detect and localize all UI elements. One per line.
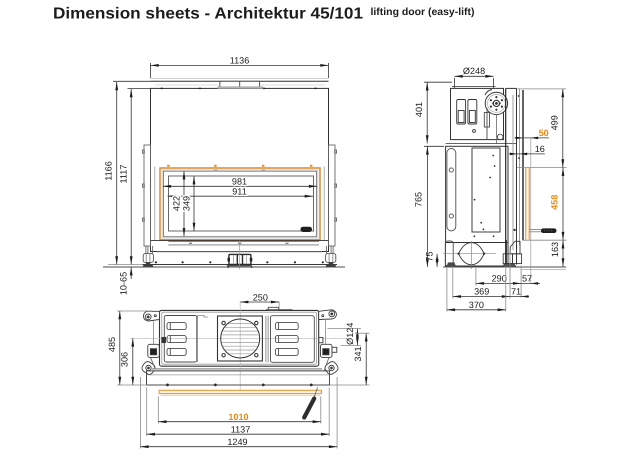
- svg-text:50: 50: [539, 128, 549, 138]
- svg-text:1136: 1136: [230, 56, 250, 66]
- svg-text:1249: 1249: [227, 437, 247, 447]
- svg-text:401: 401: [414, 102, 424, 117]
- svg-text:57: 57: [522, 274, 532, 284]
- svg-text:Ø248: Ø248: [463, 66, 485, 76]
- svg-text:1166: 1166: [104, 161, 114, 181]
- svg-text:lifting door (easy-lift): lifting door (easy-lift): [371, 7, 475, 18]
- svg-text:1117: 1117: [119, 165, 129, 184]
- svg-text:341: 341: [353, 346, 363, 361]
- svg-text:981: 981: [232, 176, 247, 186]
- svg-text:Ø124: Ø124: [345, 323, 355, 345]
- svg-text:458: 458: [549, 195, 559, 210]
- svg-text:499: 499: [549, 115, 559, 130]
- svg-text:1010: 1010: [228, 412, 248, 422]
- svg-text:422: 422: [171, 196, 181, 211]
- svg-text:163: 163: [550, 242, 560, 257]
- svg-text:Dimension sheets - Architektur: Dimension sheets - Architektur 45/101: [53, 6, 363, 23]
- svg-text:370: 370: [469, 300, 484, 310]
- svg-text:75: 75: [425, 251, 435, 261]
- svg-text:485: 485: [107, 337, 117, 352]
- svg-text:911: 911: [232, 186, 247, 196]
- svg-text:349: 349: [182, 196, 192, 211]
- svg-text:765: 765: [414, 192, 424, 207]
- svg-text:71: 71: [511, 287, 521, 297]
- svg-text:250: 250: [253, 292, 268, 302]
- svg-text:290: 290: [492, 274, 507, 284]
- svg-text:369: 369: [474, 287, 489, 297]
- svg-text:306: 306: [119, 352, 129, 367]
- svg-text:16: 16: [535, 144, 545, 154]
- svg-text:1137: 1137: [231, 424, 251, 434]
- svg-text:10-65: 10-65: [118, 272, 128, 295]
